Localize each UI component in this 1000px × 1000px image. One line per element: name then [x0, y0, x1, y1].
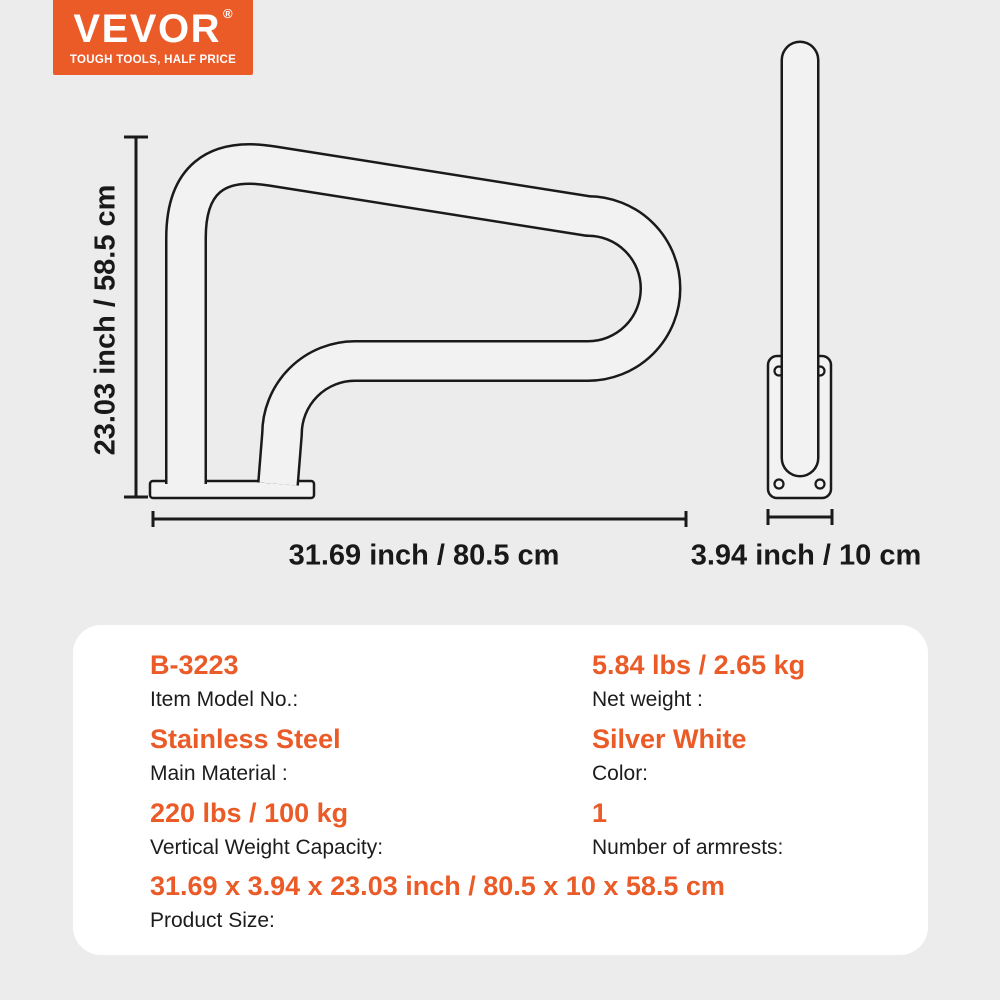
spec-value: 220 lbs / 100 kg	[150, 799, 383, 827]
width-dimension-label: 31.69 inch / 80.5 cm	[289, 540, 560, 573]
spec-weight-capacity: 220 lbs / 100 kg Vertical Weight Capacit…	[150, 799, 383, 859]
height-dimension-line	[124, 137, 148, 497]
height-dimension-label: 23.03 inch / 58.5 cm	[90, 185, 123, 456]
spec-label: Main Material :	[150, 762, 341, 785]
spec-value: B-3223	[150, 651, 298, 679]
spec-model: B-3223 Item Model No.:	[150, 651, 298, 711]
page: VEVOR® TOUGH TOOLS, HALF PRICE	[0, 0, 1000, 1000]
spec-armrest-count: 1 Number of armrests:	[592, 799, 783, 859]
spec-label: Vertical Weight Capacity:	[150, 836, 383, 859]
spec-material: Stainless Steel Main Material :	[150, 725, 341, 785]
spec-label: Product Size:	[150, 909, 725, 932]
spec-label: Item Model No.:	[150, 688, 298, 711]
width-dimension-line	[153, 511, 686, 527]
spec-value: 31.69 x 3.94 x 23.03 inch / 80.5 x 10 x …	[150, 872, 725, 900]
depth-dimension-line	[768, 509, 832, 525]
front-handrail-tube	[186, 164, 661, 484]
spec-value: Stainless Steel	[150, 725, 341, 753]
spec-label: Net weight :	[592, 688, 805, 711]
spec-color: Silver White Color:	[592, 725, 747, 785]
spec-card: B-3223 Item Model No.: 5.84 lbs / 2.65 k…	[73, 625, 928, 955]
spec-label: Number of armrests:	[592, 836, 783, 859]
spec-label: Color:	[592, 762, 747, 785]
spec-value: Silver White	[592, 725, 747, 753]
spec-value: 5.84 lbs / 2.65 kg	[592, 651, 805, 679]
spec-value: 1	[592, 799, 783, 827]
product-diagram	[0, 0, 1000, 620]
depth-dimension-label: 3.94 inch / 10 cm	[691, 540, 922, 573]
spec-net-weight: 5.84 lbs / 2.65 kg Net weight :	[592, 651, 805, 711]
side-plate-screw-hole	[816, 480, 825, 489]
side-plate-screw-hole	[775, 480, 784, 489]
spec-product-size: 31.69 x 3.94 x 23.03 inch / 80.5 x 10 x …	[150, 872, 725, 932]
